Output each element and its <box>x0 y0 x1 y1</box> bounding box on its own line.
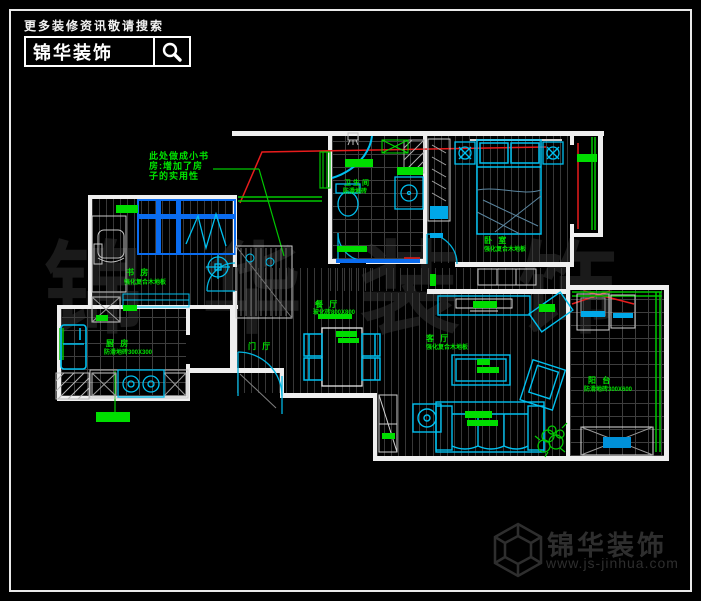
label-entry: 门 厅 <box>248 342 272 351</box>
fridge <box>61 325 86 369</box>
label-bedroom-finish: 强化复合木地板 <box>484 247 526 254</box>
label-block <box>382 433 395 439</box>
label-block-cyan <box>613 313 633 318</box>
hatch-block <box>56 373 89 399</box>
label-living: 客 厅 <box>426 334 450 343</box>
label-block <box>96 412 130 422</box>
label-study: 书 房 <box>126 268 150 277</box>
radiator <box>320 152 330 188</box>
label-block-cyan <box>581 311 605 317</box>
ac-platform <box>581 427 653 455</box>
nightstands <box>455 142 563 164</box>
brand-logo-box: 锦华装饰 <box>24 36 191 67</box>
designer-note: 此处做成小书 房:增加了房 子的实用性 <box>149 151 209 181</box>
bedroom-wardrobe <box>428 139 450 221</box>
floorplan-page: 锦华装饰 <box>0 0 701 601</box>
gas-stove <box>118 370 164 397</box>
label-study-finish: 强化复合木地板 <box>124 280 166 287</box>
label-block <box>116 205 138 213</box>
label-balcony-finish: 防滑地砖300X600 <box>584 387 632 394</box>
bathroom-sink <box>395 177 423 209</box>
label-bathroom: 卫生间 <box>344 179 371 188</box>
corner-cabinet <box>529 292 573 332</box>
bedroom-dresser <box>478 269 536 285</box>
ceiling-fan <box>206 255 230 279</box>
green-leader-lines <box>115 169 284 415</box>
note-line-3: 子的实用性 <box>149 171 209 181</box>
shower-enclosure <box>332 136 372 178</box>
label-block <box>336 331 357 337</box>
footer-website: www.js-jinhua.com <box>546 555 679 571</box>
label-block <box>473 301 497 308</box>
label-block <box>430 274 436 286</box>
search-icon <box>153 38 189 65</box>
header-tagline: 更多装修资讯敬请搜索 <box>24 17 164 34</box>
label-bedroom: 卧 室 <box>484 236 508 245</box>
water-heater <box>611 295 635 328</box>
sofa <box>436 402 544 452</box>
label-block-cyan <box>430 233 443 238</box>
label-block <box>337 246 367 252</box>
label-block <box>96 315 108 321</box>
label-block <box>477 367 499 373</box>
footer-cube-logo <box>492 522 544 578</box>
entry-door-swing <box>240 374 276 408</box>
label-block <box>577 154 597 162</box>
red-annotation-lines <box>240 143 634 304</box>
label-kitchen-finish: 防滑地砖300X300 <box>104 350 152 357</box>
bookshelf <box>138 200 235 254</box>
note-line-2: 房:增加了房 <box>149 161 209 171</box>
label-kitchen: 厨 房 <box>106 339 130 348</box>
brand-name: 锦华装饰 <box>26 39 153 65</box>
label-block <box>318 314 352 319</box>
bed-blanket-folds <box>477 189 541 234</box>
label-block <box>539 304 555 312</box>
label-block <box>345 159 373 167</box>
label-block <box>397 167 423 175</box>
label-dining: 餐 厅 <box>315 300 339 309</box>
speaker <box>413 404 441 432</box>
shoe-cabinet <box>379 395 397 452</box>
bed <box>477 140 541 234</box>
shower-head <box>348 133 358 145</box>
label-balcony: 阳 台 <box>588 376 612 385</box>
label-living-finish: 强化复合木地板 <box>426 345 468 352</box>
desk-and-chair <box>92 216 126 292</box>
bathroom-threshold <box>336 259 420 263</box>
label-block <box>338 338 359 343</box>
label-block <box>477 359 490 365</box>
label-block <box>465 411 492 418</box>
hall-wardrobe <box>236 246 292 318</box>
label-block <box>467 420 498 426</box>
floorplan-drawing <box>0 0 701 601</box>
note-line-1: 此处做成小书 <box>149 151 209 161</box>
label-bathroom-finish: 防滑地砖 <box>343 189 367 196</box>
label-block <box>123 305 137 311</box>
